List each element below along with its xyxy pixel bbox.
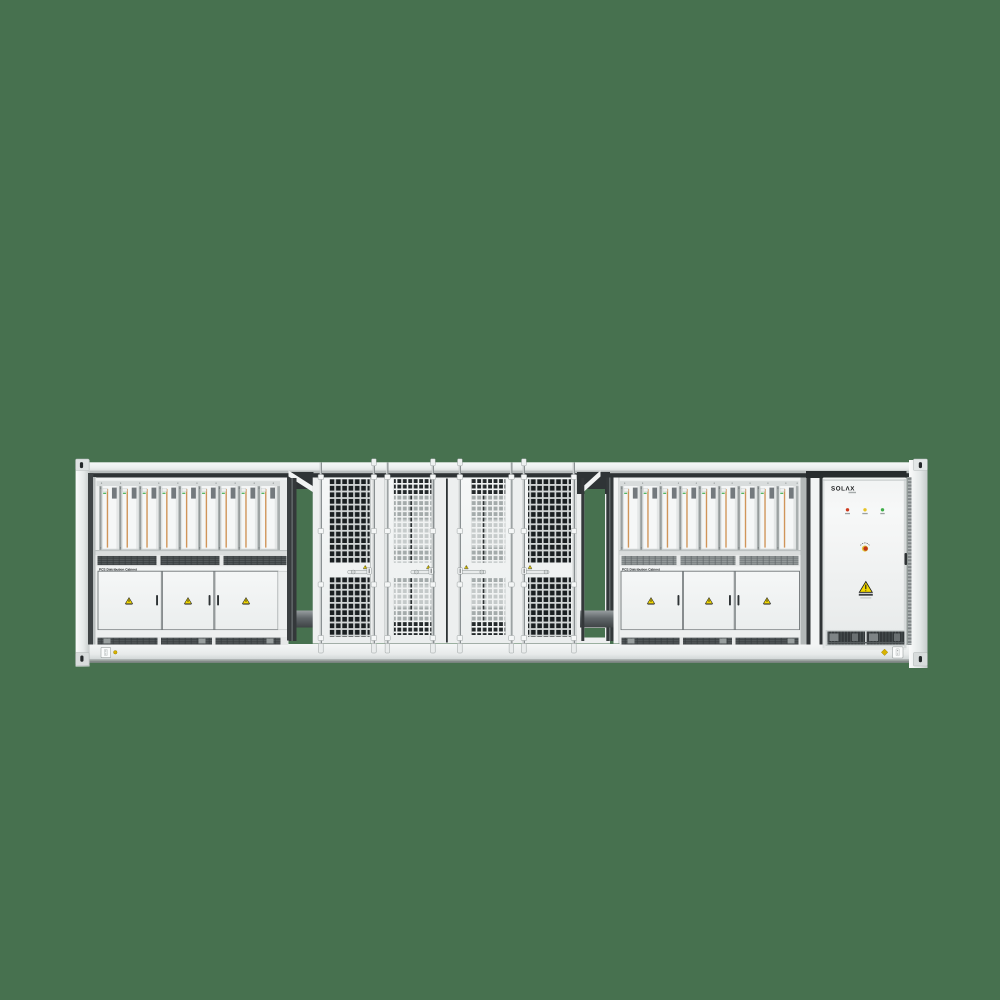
svg-text:PCS Distribution Cabinet: PCS Distribution Cabinet xyxy=(99,567,138,571)
svg-text:PCS Distribution Cabinet: PCS Distribution Cabinet xyxy=(622,567,661,571)
svg-text:SOLΛX: SOLΛX xyxy=(831,486,855,493)
